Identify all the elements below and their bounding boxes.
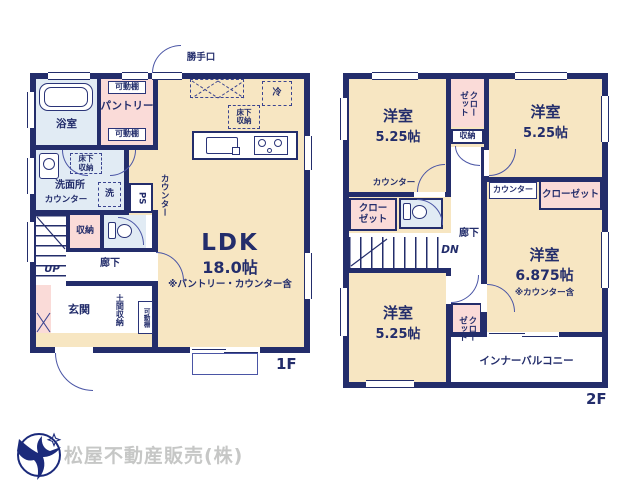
label-inner-balcony: インナーバルコニー — [451, 355, 602, 369]
window-mark — [304, 136, 312, 170]
cupboard-icon — [190, 79, 244, 98]
window-mark — [27, 222, 35, 262]
label-room-ne-size: 5.25帖 — [489, 126, 602, 143]
label-shelf-entrance: 可動棚 — [138, 301, 153, 334]
wall-segment — [349, 268, 446, 273]
label-dn: DN — [437, 244, 463, 257]
label-floor-1f: 1F — [276, 355, 297, 373]
label-washroom-counter: カウンター — [37, 195, 95, 206]
cross-brace-icon — [36, 285, 51, 333]
window-mark — [27, 92, 35, 128]
window-mark — [122, 72, 148, 80]
porch-step — [28, 384, 158, 397]
label-storage-1f: 収納 — [70, 215, 100, 248]
backdoor-opening — [152, 72, 182, 80]
label-closet-east: クローゼット — [539, 180, 602, 210]
label-hallway: 廊下 — [92, 258, 128, 270]
company-logo — [12, 426, 66, 480]
label-entrance: 玄関 — [50, 303, 108, 317]
floor-plan-canvas: 浴室 可動棚 パントリー 可動棚 床下 収納 洗面所 カウンター 洗 PS カウ… — [0, 0, 640, 480]
label-hall-2f: 廊下 — [452, 228, 486, 240]
burner-icon — [267, 148, 272, 153]
faucet-icon — [232, 147, 240, 155]
label-storage-2f: 収納 — [451, 129, 484, 144]
company-logo-bird-icon — [12, 426, 66, 480]
label-ldk-name: LDK — [160, 231, 300, 257]
wall-segment — [153, 79, 158, 150]
label-doma-storage: 土間収納 — [112, 287, 126, 333]
window-mark — [27, 158, 35, 194]
label-room-sw-name: 洋室 — [349, 304, 447, 322]
burner-icon — [274, 139, 282, 147]
label-closet-top: クロー ゼット — [451, 80, 484, 127]
label-room-ne-name: 洋室 — [489, 103, 602, 121]
window-mark — [304, 253, 312, 299]
label-room-se-name: 洋室 — [487, 246, 602, 264]
label-floor-2f: 2F — [586, 390, 607, 408]
window-mark — [515, 72, 567, 80]
bathtub-inner-icon — [44, 87, 88, 107]
window-mark — [372, 72, 418, 80]
label-counter-1f: カウンター — [157, 170, 170, 220]
label-counter-west: カウンター — [366, 178, 422, 189]
label-room-se-size: 6.875帖 — [487, 268, 602, 286]
wall-segment — [66, 248, 152, 252]
label-backdoor: 勝手口 — [181, 53, 221, 64]
toilet-tank-icon — [108, 222, 116, 239]
label-washer: 洗 — [98, 182, 121, 207]
sliding-door-line — [522, 336, 558, 338]
stair-winder-lines — [36, 215, 66, 255]
label-closet-south: クロー ゼット — [451, 304, 482, 354]
terrace-step — [192, 353, 258, 375]
door-opening — [414, 192, 445, 197]
company-name: 松屋不動産販売(株) — [64, 441, 243, 468]
label-fridge: 冷 — [262, 81, 292, 106]
label-pipe-space: PS — [129, 183, 153, 213]
entrance-door-arc — [55, 353, 93, 391]
label-room-nw-size: 5.25帖 — [349, 130, 447, 147]
label-closet-west: クロー ゼット — [349, 198, 397, 231]
window-mark — [340, 288, 348, 336]
backdoor-swing-arc — [152, 45, 181, 73]
sliding-door-line — [489, 333, 525, 335]
window-mark — [340, 98, 348, 140]
label-underfloor-kitchen: 床下 収納 — [228, 105, 260, 129]
wall-segment — [100, 215, 104, 250]
toilet-tank-icon — [403, 203, 411, 220]
window-mark — [48, 72, 90, 80]
label-up: UP — [38, 263, 66, 276]
label-washroom: 洗面所 — [40, 180, 100, 192]
label-shelf-top: 可動棚 — [108, 81, 146, 94]
window-mark — [366, 380, 414, 388]
burner-icon — [258, 139, 266, 147]
window-mark — [601, 232, 609, 288]
label-room-nw-name: 洋室 — [349, 107, 447, 125]
label-room-sw-size: 5.25帖 — [349, 327, 447, 344]
label-bathroom: 浴室 — [36, 118, 97, 132]
entrance-shoe-storage — [36, 285, 51, 333]
wall-segment — [36, 145, 158, 150]
label-pantry: パントリー — [99, 100, 155, 114]
cupboard-cross-icon — [191, 80, 245, 99]
window-mark — [601, 96, 609, 142]
sliding-door-line — [192, 349, 226, 351]
label-counter-east: カウンター — [489, 182, 537, 199]
stair-diagonal-2f — [349, 237, 389, 268]
label-shelf-bottom: 可動棚 — [108, 128, 146, 141]
vanity-basin-icon — [43, 158, 55, 170]
